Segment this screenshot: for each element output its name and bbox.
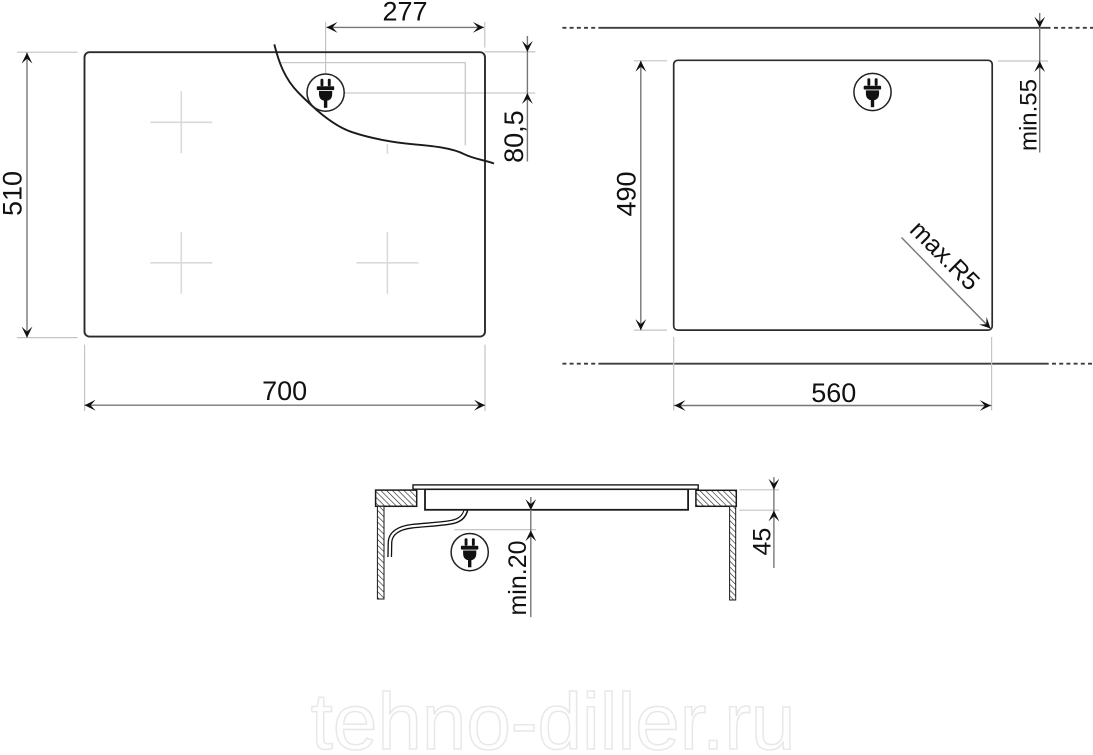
svg-text:510: 510 — [0, 171, 28, 216]
svg-text:45: 45 — [748, 528, 776, 556]
svg-text:tehno-diller.ru: tehno-diller.ru — [311, 677, 796, 755]
svg-text:80,5: 80,5 — [499, 110, 529, 163]
svg-text:560: 560 — [811, 378, 856, 408]
svg-text:700: 700 — [262, 376, 307, 406]
svg-text:min.55: min.55 — [1016, 79, 1043, 151]
svg-text:490: 490 — [612, 171, 642, 216]
svg-text:min.20: min.20 — [504, 540, 532, 615]
svg-text:277: 277 — [382, 0, 427, 27]
svg-text:max.R5: max.R5 — [904, 215, 985, 296]
